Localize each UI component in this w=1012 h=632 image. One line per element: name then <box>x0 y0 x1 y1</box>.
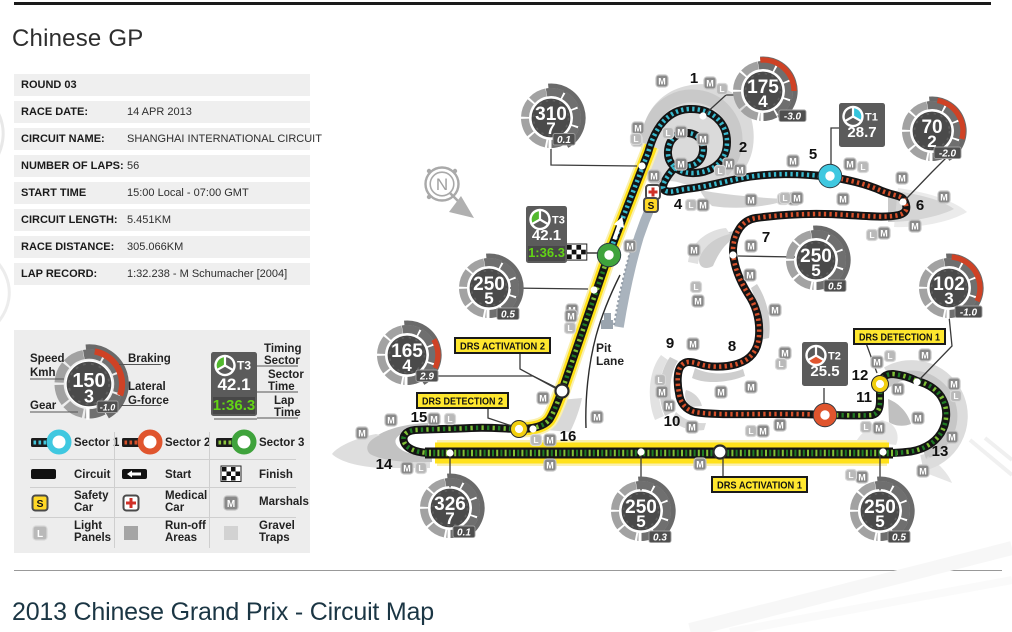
svg-text:Panels: Panels <box>74 532 111 544</box>
svg-text:Time: Time <box>274 407 301 419</box>
svg-text:L: L <box>688 200 693 210</box>
svg-text:L: L <box>633 134 638 144</box>
svg-text:Sector: Sector <box>268 369 304 381</box>
svg-text:M: M <box>677 159 685 169</box>
svg-text:M: M <box>950 379 958 389</box>
svg-text:M: M <box>839 194 847 204</box>
svg-text:0.1: 0.1 <box>457 527 471 538</box>
svg-text:L: L <box>953 391 958 401</box>
svg-text:Sector 2: Sector 2 <box>165 437 210 449</box>
svg-text:Kmh: Kmh <box>30 367 56 379</box>
svg-text:M: M <box>875 423 883 433</box>
svg-text:M: M <box>919 466 927 476</box>
svg-text:6: 6 <box>916 197 924 214</box>
svg-text:5: 5 <box>636 512 645 531</box>
svg-text:DRS ACTIVATION 1: DRS ACTIVATION 1 <box>717 480 802 492</box>
svg-text:L: L <box>748 426 753 436</box>
svg-text:DRS DETECTION 2: DRS DETECTION 2 <box>422 396 503 408</box>
svg-text:M: M <box>717 387 725 397</box>
svg-text:Run-off: Run-off <box>165 520 206 532</box>
svg-text:Car: Car <box>74 502 94 514</box>
svg-text:Sector 3: Sector 3 <box>259 437 304 449</box>
svg-text:4: 4 <box>758 92 768 111</box>
svg-text:5: 5 <box>484 289 493 308</box>
svg-text:M: M <box>746 270 754 280</box>
svg-text:L: L <box>533 435 538 445</box>
svg-text:4: 4 <box>674 196 683 213</box>
svg-text:L: L <box>887 351 892 361</box>
svg-text:L: L <box>567 323 572 333</box>
svg-text:-3.0: -3.0 <box>784 111 802 122</box>
svg-text:T1: T1 <box>865 112 878 124</box>
svg-text:M: M <box>858 472 866 482</box>
svg-text:14: 14 <box>376 456 393 473</box>
svg-text:M: M <box>694 296 702 306</box>
svg-text:T2: T2 <box>828 351 841 363</box>
svg-text:M: M <box>846 159 854 169</box>
svg-text:M: M <box>898 173 906 183</box>
svg-text:S: S <box>36 498 43 510</box>
svg-text:25.5: 25.5 <box>810 363 839 380</box>
svg-text:-2.0: -2.0 <box>939 148 957 159</box>
svg-text:M: M <box>387 415 395 425</box>
svg-text:L: L <box>869 230 874 240</box>
svg-text:L: L <box>665 128 670 138</box>
svg-text:3: 3 <box>944 289 953 308</box>
svg-text:42.1: 42.1 <box>532 227 561 244</box>
svg-text:Pit: Pit <box>596 341 611 355</box>
svg-text:2.9: 2.9 <box>419 371 434 382</box>
svg-text:11: 11 <box>856 389 872 406</box>
svg-text:Time: Time <box>268 381 295 393</box>
svg-text:7: 7 <box>762 229 770 246</box>
svg-text:S: S <box>648 201 655 212</box>
svg-text:L: L <box>719 84 724 94</box>
svg-text:15: 15 <box>411 409 428 426</box>
svg-text:M: M <box>688 422 696 432</box>
svg-text:T3: T3 <box>237 359 251 373</box>
svg-text:Timing: Timing <box>264 343 301 355</box>
svg-text:M: M <box>689 339 697 349</box>
svg-text:0.3: 0.3 <box>653 532 667 543</box>
svg-text:M: M <box>650 171 658 181</box>
svg-text:M: M <box>358 428 366 438</box>
svg-text:N: N <box>436 175 448 194</box>
svg-text:M: M <box>771 305 779 315</box>
svg-text:M: M <box>699 200 707 210</box>
svg-text:L: L <box>717 166 722 176</box>
svg-text:Traps: Traps <box>259 532 290 544</box>
svg-text:-1.0: -1.0 <box>960 307 978 318</box>
svg-text:Sector: Sector <box>264 355 300 367</box>
svg-text:Car: Car <box>165 502 185 514</box>
svg-text:L: L <box>848 470 853 480</box>
svg-text:M: M <box>430 414 438 424</box>
svg-text:M: M <box>793 193 801 203</box>
svg-text:M: M <box>658 387 666 397</box>
svg-text:16: 16 <box>560 428 577 445</box>
svg-text:M: M <box>634 123 642 133</box>
svg-text:Circuit: Circuit <box>74 469 111 481</box>
svg-text:M: M <box>914 413 922 423</box>
svg-text:0.5: 0.5 <box>501 309 515 320</box>
svg-text:Sector 1: Sector 1 <box>74 437 120 449</box>
svg-text:12: 12 <box>852 367 869 384</box>
svg-text:M: M <box>736 165 744 175</box>
svg-text:Speed: Speed <box>30 353 65 365</box>
svg-text:M: M <box>894 384 902 394</box>
svg-text:L: L <box>860 162 865 172</box>
svg-text:28.7: 28.7 <box>847 124 876 141</box>
svg-text:M: M <box>677 127 685 137</box>
svg-text:L: L <box>657 375 662 385</box>
svg-text:1:36.3: 1:36.3 <box>213 397 256 414</box>
svg-text:DRS ACTIVATION 2: DRS ACTIVATION 2 <box>460 341 545 353</box>
svg-text:L: L <box>693 282 698 292</box>
svg-text:L: L <box>778 359 783 369</box>
svg-text:Safety: Safety <box>74 490 109 502</box>
svg-text:5: 5 <box>875 512 884 531</box>
svg-text:5: 5 <box>811 261 820 280</box>
svg-text:Finish: Finish <box>259 469 293 481</box>
svg-text:7: 7 <box>445 509 454 528</box>
svg-text:M: M <box>699 134 707 144</box>
svg-text:13: 13 <box>932 443 949 460</box>
svg-text:M: M <box>706 78 714 88</box>
svg-text:M: M <box>880 228 888 238</box>
svg-text:M: M <box>539 393 547 403</box>
svg-text:L: L <box>782 193 787 203</box>
svg-text:M: M <box>781 348 789 358</box>
svg-text:4: 4 <box>402 356 412 375</box>
svg-text:M: M <box>873 357 881 367</box>
svg-text:M: M <box>940 192 948 202</box>
svg-text:Marshals: Marshals <box>259 496 309 508</box>
svg-text:M: M <box>593 412 601 422</box>
svg-text:Gear: Gear <box>30 400 57 412</box>
svg-text:Start: Start <box>165 469 191 481</box>
svg-text:M: M <box>696 459 704 469</box>
svg-text:M: M <box>759 426 767 436</box>
svg-text:M: M <box>948 432 956 442</box>
svg-text:Lap: Lap <box>274 395 294 407</box>
svg-text:Braking: Braking <box>128 353 171 365</box>
svg-text:1:36.3: 1:36.3 <box>528 245 565 260</box>
svg-text:M: M <box>690 245 698 255</box>
svg-text:M: M <box>911 221 919 231</box>
svg-text:M: M <box>658 76 666 86</box>
svg-text:5: 5 <box>809 146 817 163</box>
svg-text:10: 10 <box>664 413 681 430</box>
svg-text:0.5: 0.5 <box>892 532 906 543</box>
svg-text:M: M <box>567 311 575 321</box>
svg-text:0.5: 0.5 <box>828 281 842 292</box>
svg-text:0.1: 0.1 <box>557 135 571 146</box>
svg-text:L: L <box>863 422 868 432</box>
svg-text:M: M <box>747 195 755 205</box>
svg-text:M: M <box>546 460 554 470</box>
svg-text:Gravel: Gravel <box>259 520 295 532</box>
svg-text:T3: T3 <box>552 215 565 227</box>
svg-text:Light: Light <box>74 520 102 532</box>
svg-text:L: L <box>447 414 452 424</box>
svg-text:M: M <box>789 156 797 166</box>
svg-text:M: M <box>776 420 784 430</box>
svg-text:M: M <box>403 463 411 473</box>
svg-text:Areas: Areas <box>165 532 197 544</box>
svg-text:L: L <box>37 529 43 540</box>
svg-text:1: 1 <box>690 70 698 87</box>
svg-text:M: M <box>725 159 733 169</box>
svg-text:M: M <box>747 241 755 251</box>
svg-text:3: 3 <box>84 386 94 406</box>
svg-text:8: 8 <box>728 338 736 355</box>
svg-text:M: M <box>546 435 554 445</box>
svg-text:2: 2 <box>739 139 747 156</box>
svg-text:M: M <box>921 350 929 360</box>
svg-text:M: M <box>747 382 755 392</box>
svg-text:Lateral: Lateral <box>128 381 166 393</box>
svg-text:Medical: Medical <box>165 490 207 502</box>
svg-text:DRS DETECTION 1: DRS DETECTION 1 <box>859 332 940 344</box>
svg-text:42.1: 42.1 <box>217 375 250 394</box>
svg-text:-1.0: -1.0 <box>100 402 116 412</box>
svg-text:M: M <box>626 241 634 251</box>
svg-text:M: M <box>227 499 235 510</box>
svg-text:L: L <box>418 463 423 473</box>
svg-text:Lane: Lane <box>596 354 624 368</box>
svg-text:M: M <box>665 401 673 411</box>
svg-text:9: 9 <box>666 335 674 352</box>
